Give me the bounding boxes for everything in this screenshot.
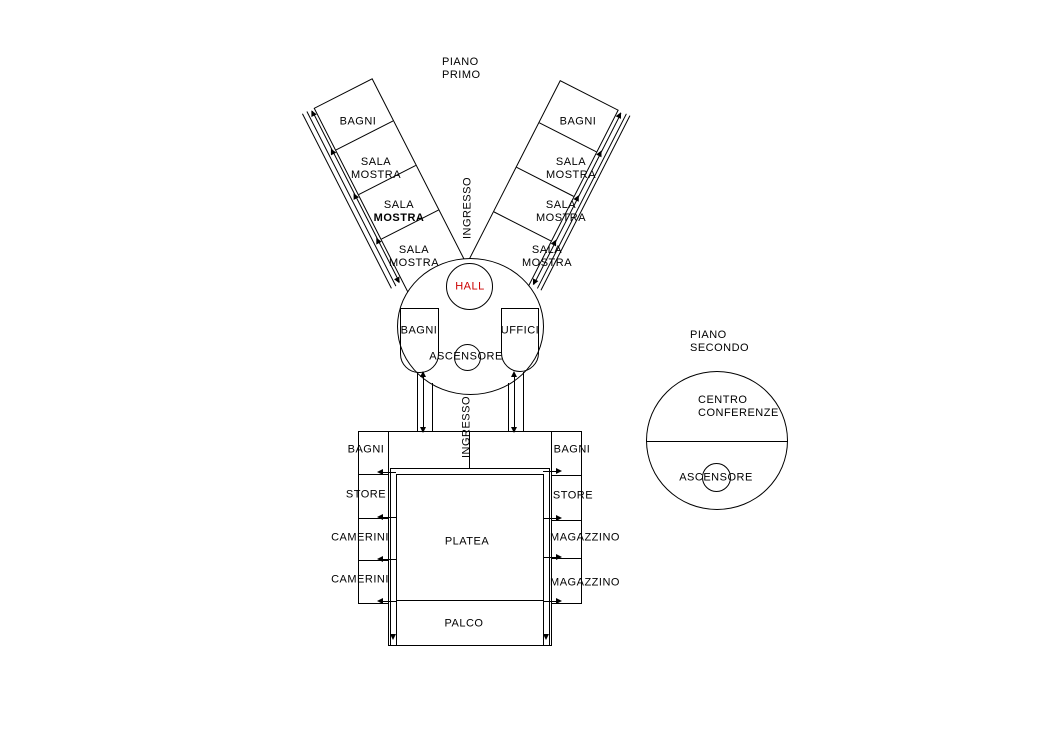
corridor-wall-line (523, 372, 524, 431)
room-label-line1: SALA (389, 244, 439, 257)
stage-divider-line (396, 600, 544, 601)
floor1-title: PIANO PRIMO (442, 56, 481, 82)
elevator-label: ASCENSORE (679, 472, 753, 485)
door-arrow-line (543, 557, 557, 558)
room-label: BAGNI (340, 116, 377, 129)
room-label-line2: MOSTRA (389, 257, 439, 270)
corridor-wall-line (432, 383, 433, 431)
arrowhead-down-icon (390, 634, 396, 640)
room-label-line2: MOSTRA (351, 169, 401, 182)
door-arrow-icon (556, 468, 562, 474)
door-arrow-line (382, 472, 396, 473)
theater-room-label: MAGAZZINO (550, 532, 620, 545)
door-arrow-line (382, 517, 396, 518)
door-arrow-icon (377, 514, 383, 520)
rotunda-room-uffici (501, 308, 539, 372)
door-arrow-icon (556, 554, 562, 560)
door-arrow-icon (377, 556, 383, 562)
hall-label: HALL (455, 281, 485, 294)
corridor-wall-line (417, 372, 418, 431)
room-label: BAGNI (560, 116, 597, 129)
room-divider-line (358, 518, 389, 519)
stalls-label: PLATEA (445, 536, 489, 549)
entrance-upper-label: INGRESSO (463, 177, 474, 239)
door-arrow-line (543, 601, 557, 602)
theater-room-label: STORE (346, 489, 386, 502)
elevator-label: ASCENSORE (429, 351, 503, 364)
room-label-line2: MOSTRA (374, 212, 425, 225)
floor2-title-line2: SECONDO (690, 342, 749, 355)
room-label-line2: MOSTRA (546, 169, 596, 182)
theater-room-label: CAMERINI (331, 532, 389, 545)
second-floor-divider-line (646, 441, 788, 442)
room-label: SALA MOSTRA (374, 199, 425, 225)
rotunda-bagni-label: BAGNI (401, 325, 438, 338)
door-arrow-icon (556, 515, 562, 521)
conference-center-label: CENTRO CONFERENZE (698, 394, 779, 420)
floor1-title-line1: PIANO (442, 56, 481, 69)
flow-arrow-line (514, 376, 515, 428)
conference-label-line2: CONFERENZE (698, 407, 779, 420)
room-divider-line (358, 474, 389, 475)
arrowhead-up-icon (420, 371, 426, 377)
entrance-lower-label: INGRESSO (462, 396, 473, 458)
room-label-line1: SALA (374, 199, 425, 212)
room-label: SALA MOSTRA (536, 199, 586, 225)
floor-plan-canvas: PIANO PRIMO PIANO SECONDO BAGNI SALA MOS… (0, 0, 1055, 746)
door-arrow-icon (377, 469, 383, 475)
corridor-wall-line (508, 383, 509, 431)
room-label-line2: MOSTRA (536, 212, 586, 225)
door-arrow-line (543, 518, 557, 519)
room-label: SALA MOSTRA (546, 156, 596, 182)
flow-arrow-line (423, 376, 424, 428)
theater-room-label: BAGNI (348, 444, 385, 457)
rotunda-uffici-label: UFFICI (501, 325, 539, 338)
floor1-title-line2: PRIMO (442, 69, 481, 82)
arrowhead-up-icon (511, 371, 517, 377)
room-label: SALA MOSTRA (522, 244, 572, 270)
theater-room-label: MAGAZZINO (550, 577, 620, 590)
room-label-line1: SALA (522, 244, 572, 257)
room-label-line2: MOSTRA (522, 257, 572, 270)
theater-room-label: STORE (553, 490, 593, 503)
door-arrow-line (382, 601, 396, 602)
room-divider-line (551, 475, 582, 476)
door-arrow-icon (377, 598, 383, 604)
room-label-line1: SALA (546, 156, 596, 169)
room-divider-line (358, 560, 389, 561)
stage-label: PALCO (445, 618, 484, 631)
theater-room-label: CAMERINI (331, 574, 389, 587)
floor2-title-line1: PIANO (690, 329, 749, 342)
room-label-line1: SALA (351, 156, 401, 169)
door-arrow-line (382, 559, 396, 560)
arrowhead-down-icon (543, 634, 549, 640)
conference-label-line1: CENTRO (698, 394, 779, 407)
theater-room-label: BAGNI (554, 444, 591, 457)
floor2-title: PIANO SECONDO (690, 329, 749, 355)
door-arrow-icon (556, 598, 562, 604)
room-label-line1: SALA (536, 199, 586, 212)
room-label: SALA MOSTRA (351, 156, 401, 182)
door-arrow-line (543, 471, 557, 472)
room-label: SALA MOSTRA (389, 244, 439, 270)
